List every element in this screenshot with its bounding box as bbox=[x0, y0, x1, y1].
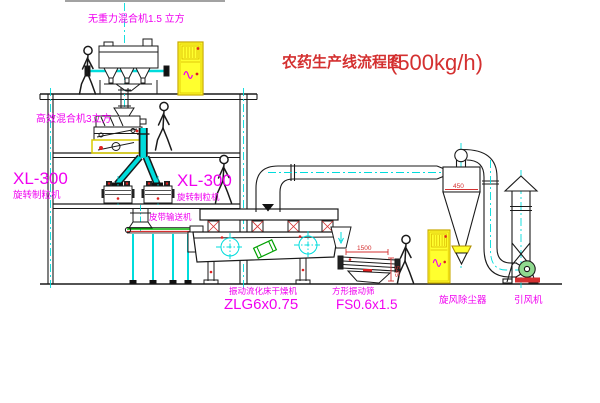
label-granulator-right-model: XL-300 bbox=[177, 171, 232, 190]
cad-flow-diagram: 无重力混合机1.5 立方 农药生产线流程图 (500kg/h) 高效混合机3立方… bbox=[0, 0, 600, 403]
text-labels: 无重力混合机1.5 立方 农药生产线流程图 (500kg/h) 高效混合机3立方… bbox=[13, 12, 543, 313]
diagram-canvas: 无重力混合机1.5 立方 农药生产线流程图 (500kg/h) 高效混合机3立方… bbox=[0, 0, 600, 403]
label-granulator-left-name: 旋转制粒机 bbox=[13, 189, 61, 201]
exhaust-duct bbox=[256, 164, 455, 212]
person-floor2 bbox=[156, 102, 172, 150]
granulator-left bbox=[102, 176, 135, 205]
induced-draft-fan bbox=[515, 261, 540, 283]
diagram-title: 农药生产线流程图 bbox=[281, 53, 402, 71]
dim-screen-height: 545 bbox=[393, 266, 400, 277]
label-fan: 引风机 bbox=[514, 294, 543, 306]
label-granulator-right-name: 旋转制粒机 bbox=[177, 192, 220, 202]
label-high-efficiency-mixer: 高效混合机3立方 bbox=[36, 112, 112, 125]
label-belt-conveyor: 皮带输送机 bbox=[149, 212, 192, 222]
label-screen-model: FS0.6x1.5 bbox=[336, 297, 398, 312]
fluid-bed-dryer bbox=[188, 209, 338, 284]
vibrating-screen bbox=[331, 227, 400, 283]
control-cabinet-bottom bbox=[428, 230, 450, 283]
label-granulator-left-model: XL-300 bbox=[13, 169, 68, 188]
diagram-title-capacity: (500kg/h) bbox=[390, 50, 483, 75]
dim-cyclone: 450 bbox=[453, 183, 464, 190]
granulator-right bbox=[142, 176, 175, 205]
label-screen-name: 方形振动筛 bbox=[332, 286, 375, 296]
label-dryer-model: ZLG6x0.75 bbox=[224, 296, 298, 313]
label-dryer-name: 振动流化床干燥机 bbox=[229, 286, 298, 296]
label-gravity-mixer: 无重力混合机1.5 立方 bbox=[88, 12, 185, 25]
dim-screen-length: 1500 bbox=[357, 245, 372, 252]
control-cabinet-top bbox=[178, 42, 203, 95]
label-cyclone: 旋风除尘器 bbox=[439, 294, 487, 306]
